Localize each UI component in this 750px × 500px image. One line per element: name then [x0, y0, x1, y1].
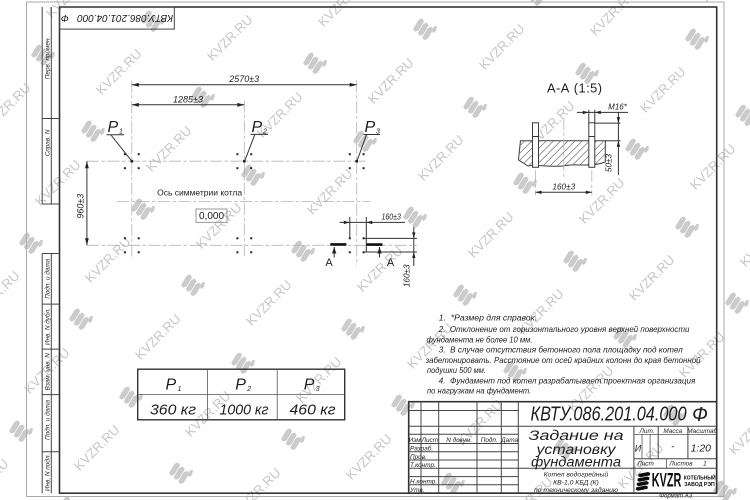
svg-text:KVZR.RU: KVZR.RU	[243, 277, 295, 329]
svg-text:Подп. и дата: Подп. и дата	[43, 258, 51, 298]
svg-text:Листов: Листов	[668, 461, 693, 468]
svg-text:фундамента: фундамента	[531, 455, 622, 470]
svg-text:Ось симметрии котла: Ось симметрии котла	[157, 187, 242, 197]
svg-text:М16*: М16*	[608, 103, 628, 112]
svg-text:Пров.: Пров.	[410, 454, 427, 461]
svg-text:KVZR.RU: KVZR.RU	[637, 64, 689, 116]
svg-text:Н.контр.: Н.контр.	[410, 479, 437, 486]
svg-text:1000 кг: 1000 кг	[220, 402, 270, 419]
svg-text:KVZR.RU: KVZR.RU	[71, 422, 123, 474]
svg-text:Задание на: Задание на	[529, 428, 625, 443]
svg-text:Дата: Дата	[500, 437, 518, 444]
svg-text:KVZR.RU: KVZR.RU	[343, 431, 395, 483]
svg-text:4. Фундамент под котел разраб: 4. Фундамент под котел разрабатывает про…	[439, 375, 696, 385]
svg-text:Подп. и дата: Подп. и дата	[43, 400, 51, 440]
svg-text:KVZR.RU: KVZR.RU	[0, 268, 23, 320]
svg-text:160±3: 160±3	[552, 183, 575, 192]
svg-text:Масштаб: Масштаб	[687, 427, 717, 435]
svg-text:И: И	[635, 443, 642, 453]
svg-text:N докум.: N докум.	[446, 436, 472, 444]
svg-text:KVZR.RU: KVZR.RU	[626, 252, 678, 304]
svg-text:Изм: Изм	[409, 437, 421, 444]
svg-text:KVZR.RU: KVZR.RU	[687, 141, 739, 193]
svg-text:KVZR.RU: KVZR.RU	[193, 200, 245, 252]
svg-text:КВТУ.086.201.04.000: КВТУ.086.201.04.000	[531, 404, 687, 426]
svg-text:Перв. примен.: Перв. примен.	[44, 37, 51, 79]
svg-text:КВТУ.086.201.04.000 Ф: КВТУ.086.201.04.000 Ф	[61, 12, 173, 23]
svg-text:360 кг: 360 кг	[150, 402, 197, 419]
svg-text:А-А (1:5): А-А (1:5)	[547, 81, 602, 96]
svg-text:А: А	[325, 257, 333, 269]
svg-text:50±3: 50±3	[605, 153, 614, 172]
svg-text:KVZR.RU: KVZR.RU	[726, 406, 750, 458]
svg-text:Утв.: Утв.	[409, 487, 425, 494]
svg-text:1: 1	[178, 386, 182, 393]
svg-text:KVZR.RU: KVZR.RU	[204, 12, 256, 64]
svg-text:Справ. N: Справ. N	[44, 129, 51, 156]
svg-text:KVZR.RU: KVZR.RU	[465, 209, 517, 261]
svg-text:Формат А3: Формат А3	[659, 492, 692, 499]
svg-text:KVZR.RU: KVZR.RU	[365, 55, 417, 107]
svg-text:КВ-1,0 КБД (К): КВ-1,0 КБД (К)	[553, 479, 599, 486]
svg-text:Лист: Лист	[421, 437, 439, 444]
svg-text:3. В случае отсутствия бетонн: 3. В случае отсутствия бетонного пола пл…	[439, 345, 683, 355]
svg-text:фундамента не более 10 мм.: фундамента не более 10 мм.	[427, 334, 533, 344]
svg-text:3: 3	[316, 386, 320, 393]
svg-text:KVZR.RU: KVZR.RU	[315, 0, 367, 30]
svg-text:460 кг: 460 кг	[290, 402, 337, 419]
svg-text:ЗАВОД РЭП: ЗАВОД РЭП	[684, 482, 715, 488]
svg-text:1: 1	[703, 461, 707, 468]
svg-text:2570±3: 2570±3	[228, 74, 259, 84]
svg-text:по нагрузкам на фундамент.: по нагрузкам на фундамент.	[427, 386, 531, 396]
svg-text:КОТЕЛЬНЫЙ: КОТЕЛЬНЫЙ	[684, 474, 716, 482]
svg-text:А: А	[387, 257, 395, 269]
svg-text:P: P	[252, 119, 263, 136]
svg-text:Котел водогрейный: Котел водогрейный	[544, 471, 609, 479]
svg-text:Взам. инв. N: Взам. инв. N	[44, 353, 51, 391]
svg-text:0,000: 0,000	[199, 211, 224, 222]
svg-text:P: P	[304, 377, 315, 394]
svg-text:по техническому заданию: по техническому заданию	[534, 486, 618, 494]
svg-text:Инв. N дубл.: Инв. N дубл.	[43, 308, 51, 345]
svg-text:KVZR.RU: KVZR.RU	[0, 456, 12, 500]
svg-text:KVZR.RU: KVZR.RU	[93, 46, 145, 98]
svg-text:Лист: Лист	[636, 461, 654, 468]
svg-text:P: P	[365, 119, 376, 136]
svg-text:Лит.: Лит.	[639, 428, 655, 435]
svg-text:160±3: 160±3	[381, 213, 401, 222]
svg-text:подушки 500 мм.: подушки 500 мм.	[427, 365, 486, 375]
svg-text:1:20: 1:20	[691, 442, 712, 454]
svg-text:160±3: 160±3	[403, 264, 412, 287]
svg-text:KVZR.RU: KVZR.RU	[576, 175, 628, 227]
svg-text:2. Отклонение от горизонтальн: 2. Отклонение от горизонтального уровня …	[438, 324, 690, 334]
svg-text:Инв. N подл.: Инв. N подл.	[43, 454, 51, 491]
svg-text:Подп.: Подп.	[481, 436, 498, 444]
svg-text:забетонировать. Расстояние от: забетонировать. Расстояние от осей крайн…	[425, 355, 701, 365]
svg-text:KVZR.RU: KVZR.RU	[132, 311, 184, 363]
svg-text:KVZR.RU: KVZR.RU	[293, 354, 345, 406]
svg-text:1285±3: 1285±3	[173, 95, 203, 105]
svg-text:Масса: Масса	[663, 428, 682, 435]
svg-text:Разраб.: Разраб.	[410, 445, 433, 453]
svg-text:KVZR.RU: KVZR.RU	[587, 0, 639, 39]
svg-text:960±3: 960±3	[75, 194, 85, 219]
svg-text:KVZR: KVZR	[652, 469, 682, 491]
svg-text:KVZR.RU: KVZR.RU	[232, 465, 284, 500]
svg-text:KVZR.RU: KVZR.RU	[304, 166, 356, 218]
svg-text:KVZR.RU: KVZR.RU	[0, 80, 34, 132]
svg-text:KVZR.RU: KVZR.RU	[143, 123, 195, 175]
svg-text:Т.контр.: Т.контр.	[410, 462, 436, 469]
svg-text:P: P	[235, 377, 246, 394]
svg-text:KVZR.RU: KVZR.RU	[415, 132, 467, 184]
svg-text:P: P	[108, 119, 119, 136]
svg-text:P: P	[166, 377, 177, 394]
svg-text:KVZR.RU: KVZR.RU	[82, 234, 134, 286]
svg-text:-: -	[671, 442, 674, 452]
svg-text:KVZR.RU: KVZR.RU	[476, 21, 528, 73]
svg-text:Ф: Ф	[692, 404, 708, 426]
svg-text:2: 2	[246, 386, 251, 393]
svg-text:1. *Размер для справок.: 1. *Размер для справок.	[439, 312, 537, 322]
svg-text:KVZR.RU: KVZR.RU	[737, 218, 750, 270]
